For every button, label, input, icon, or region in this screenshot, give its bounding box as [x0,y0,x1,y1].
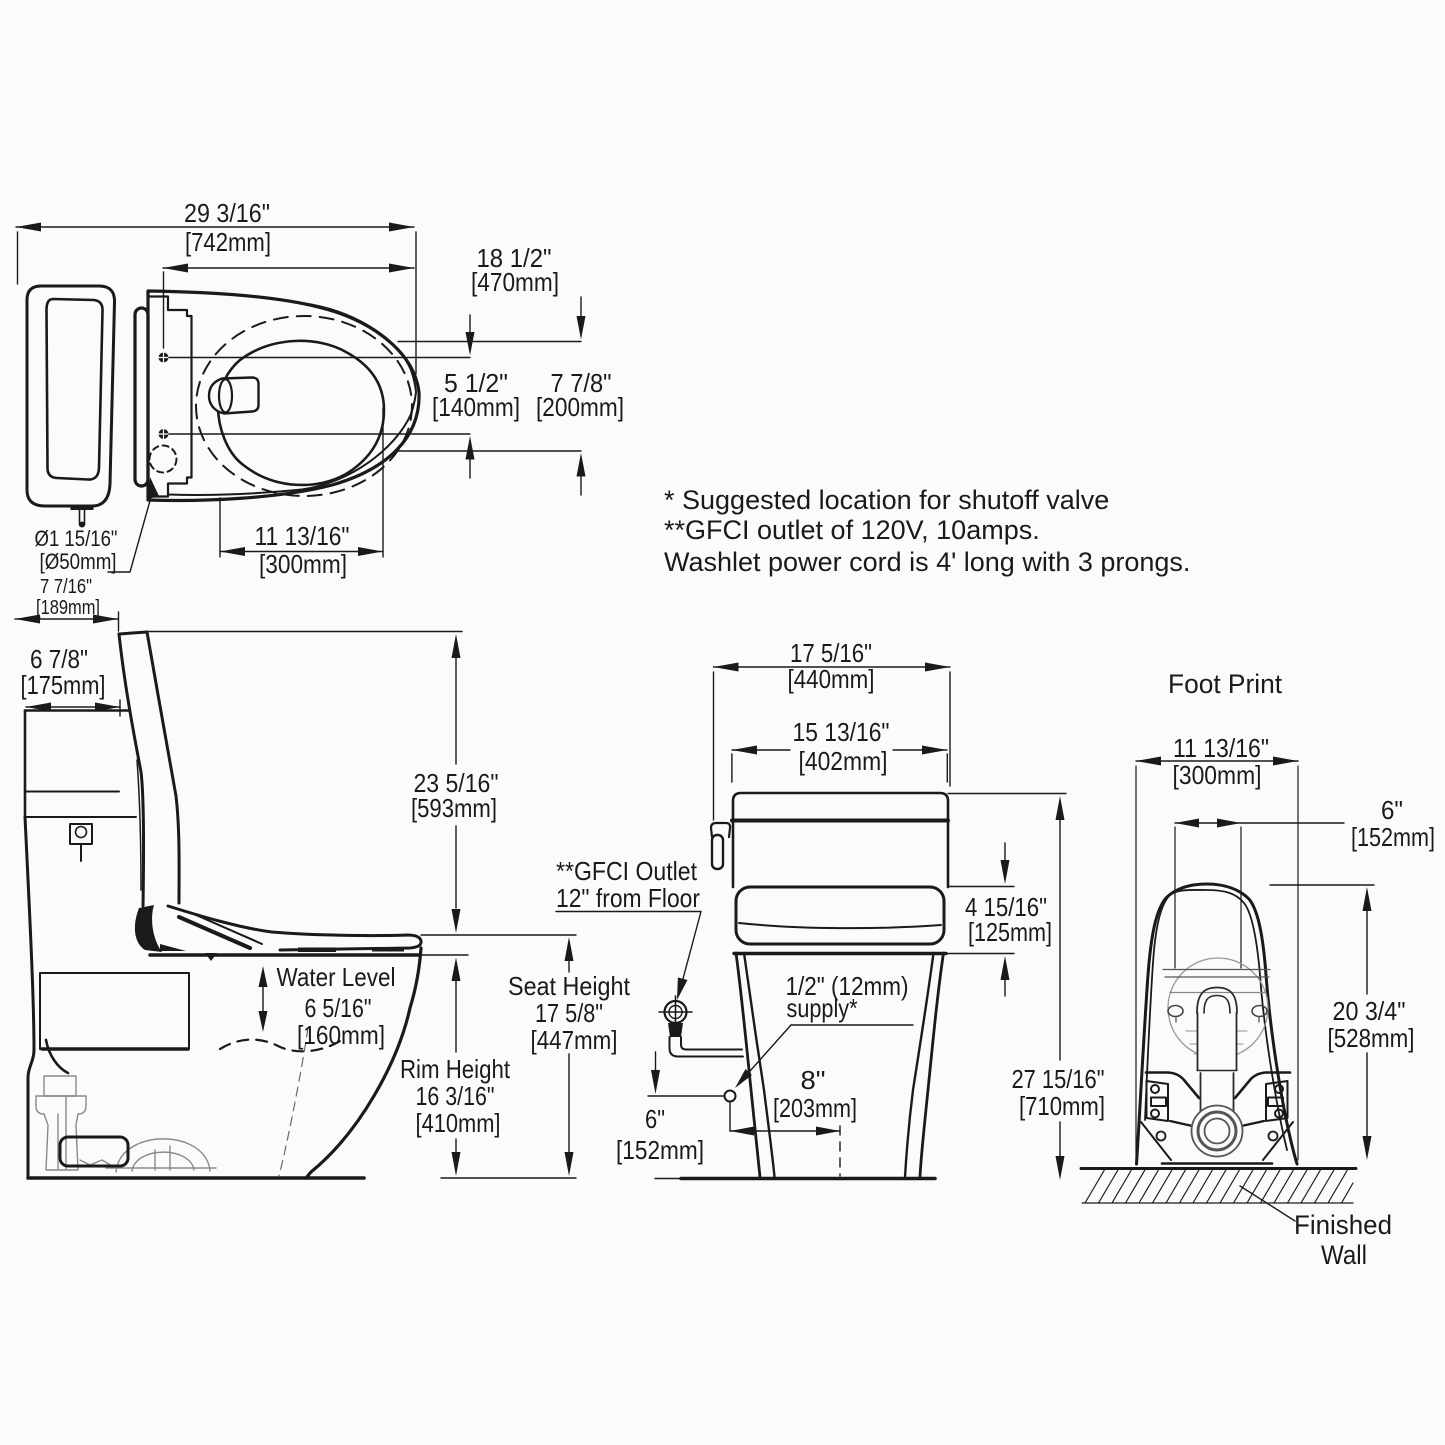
svg-text:[710mm]: [710mm] [1019,1091,1105,1121]
svg-text:[152mm]: [152mm] [1351,822,1435,852]
svg-text:Finished: Finished [1294,1210,1392,1240]
svg-text:Ø1 15/16": Ø1 15/16" [35,526,118,551]
svg-text:[200mm]: [200mm] [536,392,624,422]
svg-text:[528mm]: [528mm] [1328,1023,1415,1053]
svg-text:[300mm]: [300mm] [1173,760,1262,790]
svg-text:[189mm]: [189mm] [36,597,100,619]
svg-text:29 3/16": 29 3/16" [184,198,270,228]
svg-text:[160mm]: [160mm] [297,1020,385,1050]
svg-text:20 3/4": 20 3/4" [1333,996,1406,1026]
svg-text:[440mm]: [440mm] [788,664,875,694]
svg-text:6": 6" [645,1104,665,1134]
svg-text:[410mm]: [410mm] [416,1108,501,1138]
svg-text:Seat Height: Seat Height [508,971,631,1001]
svg-text:8": 8" [801,1065,826,1095]
svg-text:[742mm]: [742mm] [185,227,271,257]
svg-text:Washlet power cord is 4' long: Washlet power cord is 4' long with 3 pro… [664,547,1190,577]
svg-text:[300mm]: [300mm] [259,549,347,579]
svg-text:* Suggested location for shuto: * Suggested location for shutoff valve [664,485,1109,515]
svg-text:[152mm]: [152mm] [616,1135,704,1165]
svg-text:15 13/16": 15 13/16" [793,717,890,747]
svg-text:[402mm]: [402mm] [799,746,888,776]
svg-text:7 7/16": 7 7/16" [40,576,92,598]
svg-text:27 15/16": 27 15/16" [1012,1064,1105,1094]
svg-text:11 13/16": 11 13/16" [1173,733,1269,763]
svg-text:17 5/8": 17 5/8" [535,998,603,1028]
svg-text:**GFCI outlet of 120V, 10amps.: **GFCI outlet of 120V, 10amps. [664,515,1040,545]
svg-text:[Ø50mm]: [Ø50mm] [40,549,117,574]
svg-text:11 13/16": 11 13/16" [255,521,350,551]
svg-text:Rim Height: Rim Height [400,1054,511,1084]
svg-text:12" from Floor: 12" from Floor [556,883,700,913]
svg-text:Water Level: Water Level [277,962,396,992]
svg-text:[125mm]: [125mm] [968,917,1052,947]
svg-text:Foot Print: Foot Print [1168,669,1282,699]
svg-text:supply*: supply* [787,993,858,1023]
svg-text:**GFCI Outlet: **GFCI Outlet [556,856,698,886]
svg-text:[593mm]: [593mm] [411,793,497,823]
svg-text:Wall: Wall [1321,1240,1367,1270]
svg-text:[447mm]: [447mm] [531,1025,618,1055]
svg-text:[203mm]: [203mm] [773,1093,857,1123]
svg-text:16 3/16": 16 3/16" [416,1081,495,1111]
svg-text:6": 6" [1381,795,1403,825]
svg-text:[470mm]: [470mm] [471,267,559,297]
svg-text:[140mm]: [140mm] [432,392,520,422]
svg-text:6 5/16": 6 5/16" [305,993,372,1023]
svg-text:[175mm]: [175mm] [21,670,106,700]
